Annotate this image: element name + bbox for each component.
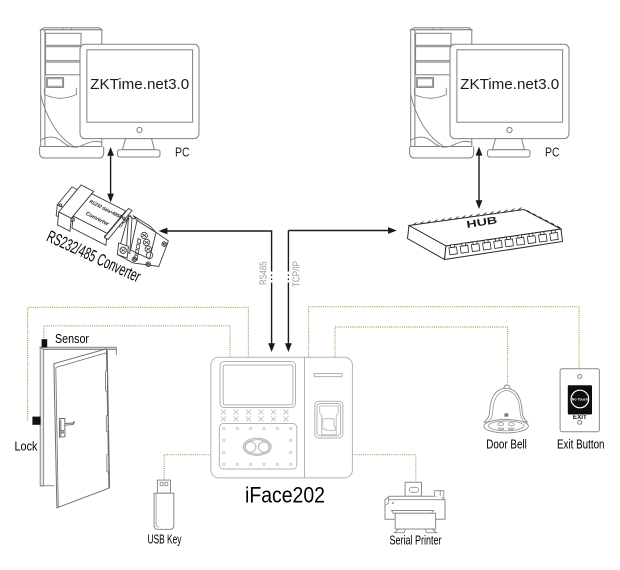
svg-text:Lock: Lock [15,440,39,454]
svg-text:USB Key: USB Key [148,533,182,547]
svg-text:Exit Button: Exit Button [557,438,605,452]
svg-text:RS485: RS485 [259,261,270,285]
svg-text:TCP/IP: TCP/IP [292,261,303,287]
svg-text:iFace202: iFace202 [245,483,325,508]
svg-text:Sensor: Sensor [55,332,89,346]
svg-text:Door Bell: Door Bell [486,438,527,452]
svg-text:No Touch: No Touch [572,398,588,402]
svg-text:Serial Printer: Serial Printer [390,534,442,548]
